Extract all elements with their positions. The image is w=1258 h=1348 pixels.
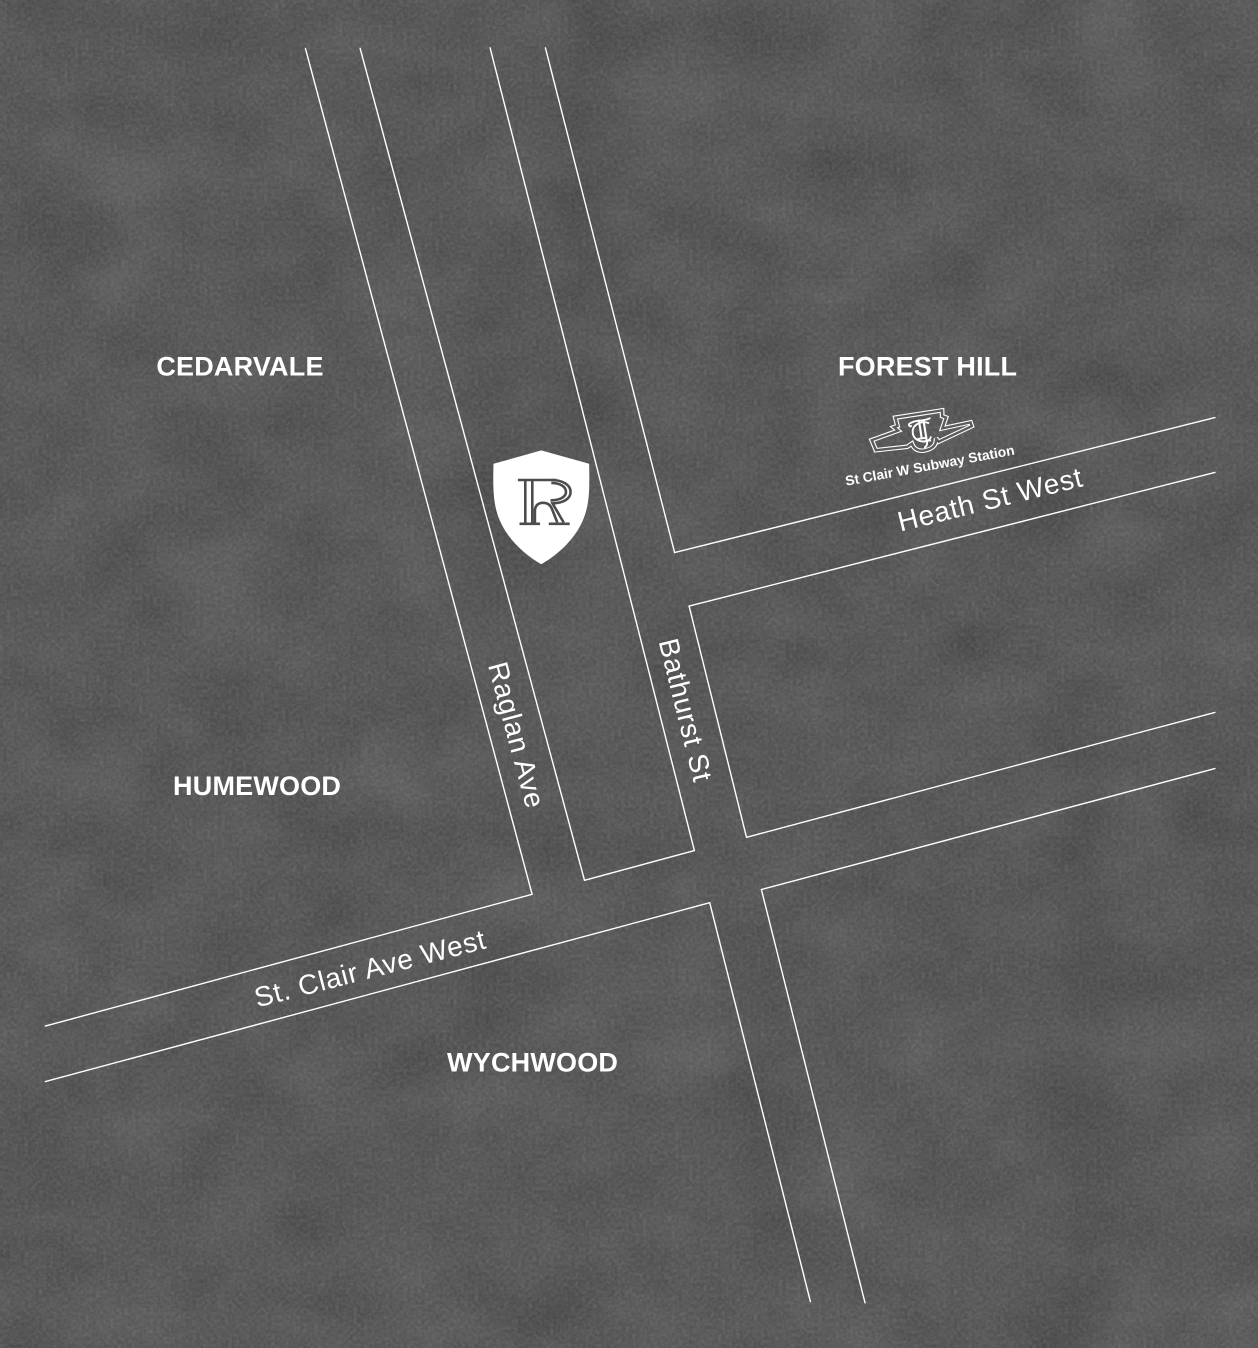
svg-text:CEDARVALE: CEDARVALE <box>156 352 323 382</box>
svg-text:WYCHWOOD: WYCHWOOD <box>447 1048 618 1078</box>
svg-text:HUMEWOOD: HUMEWOOD <box>173 771 341 801</box>
svg-text:FOREST HILL: FOREST HILL <box>838 352 1017 382</box>
